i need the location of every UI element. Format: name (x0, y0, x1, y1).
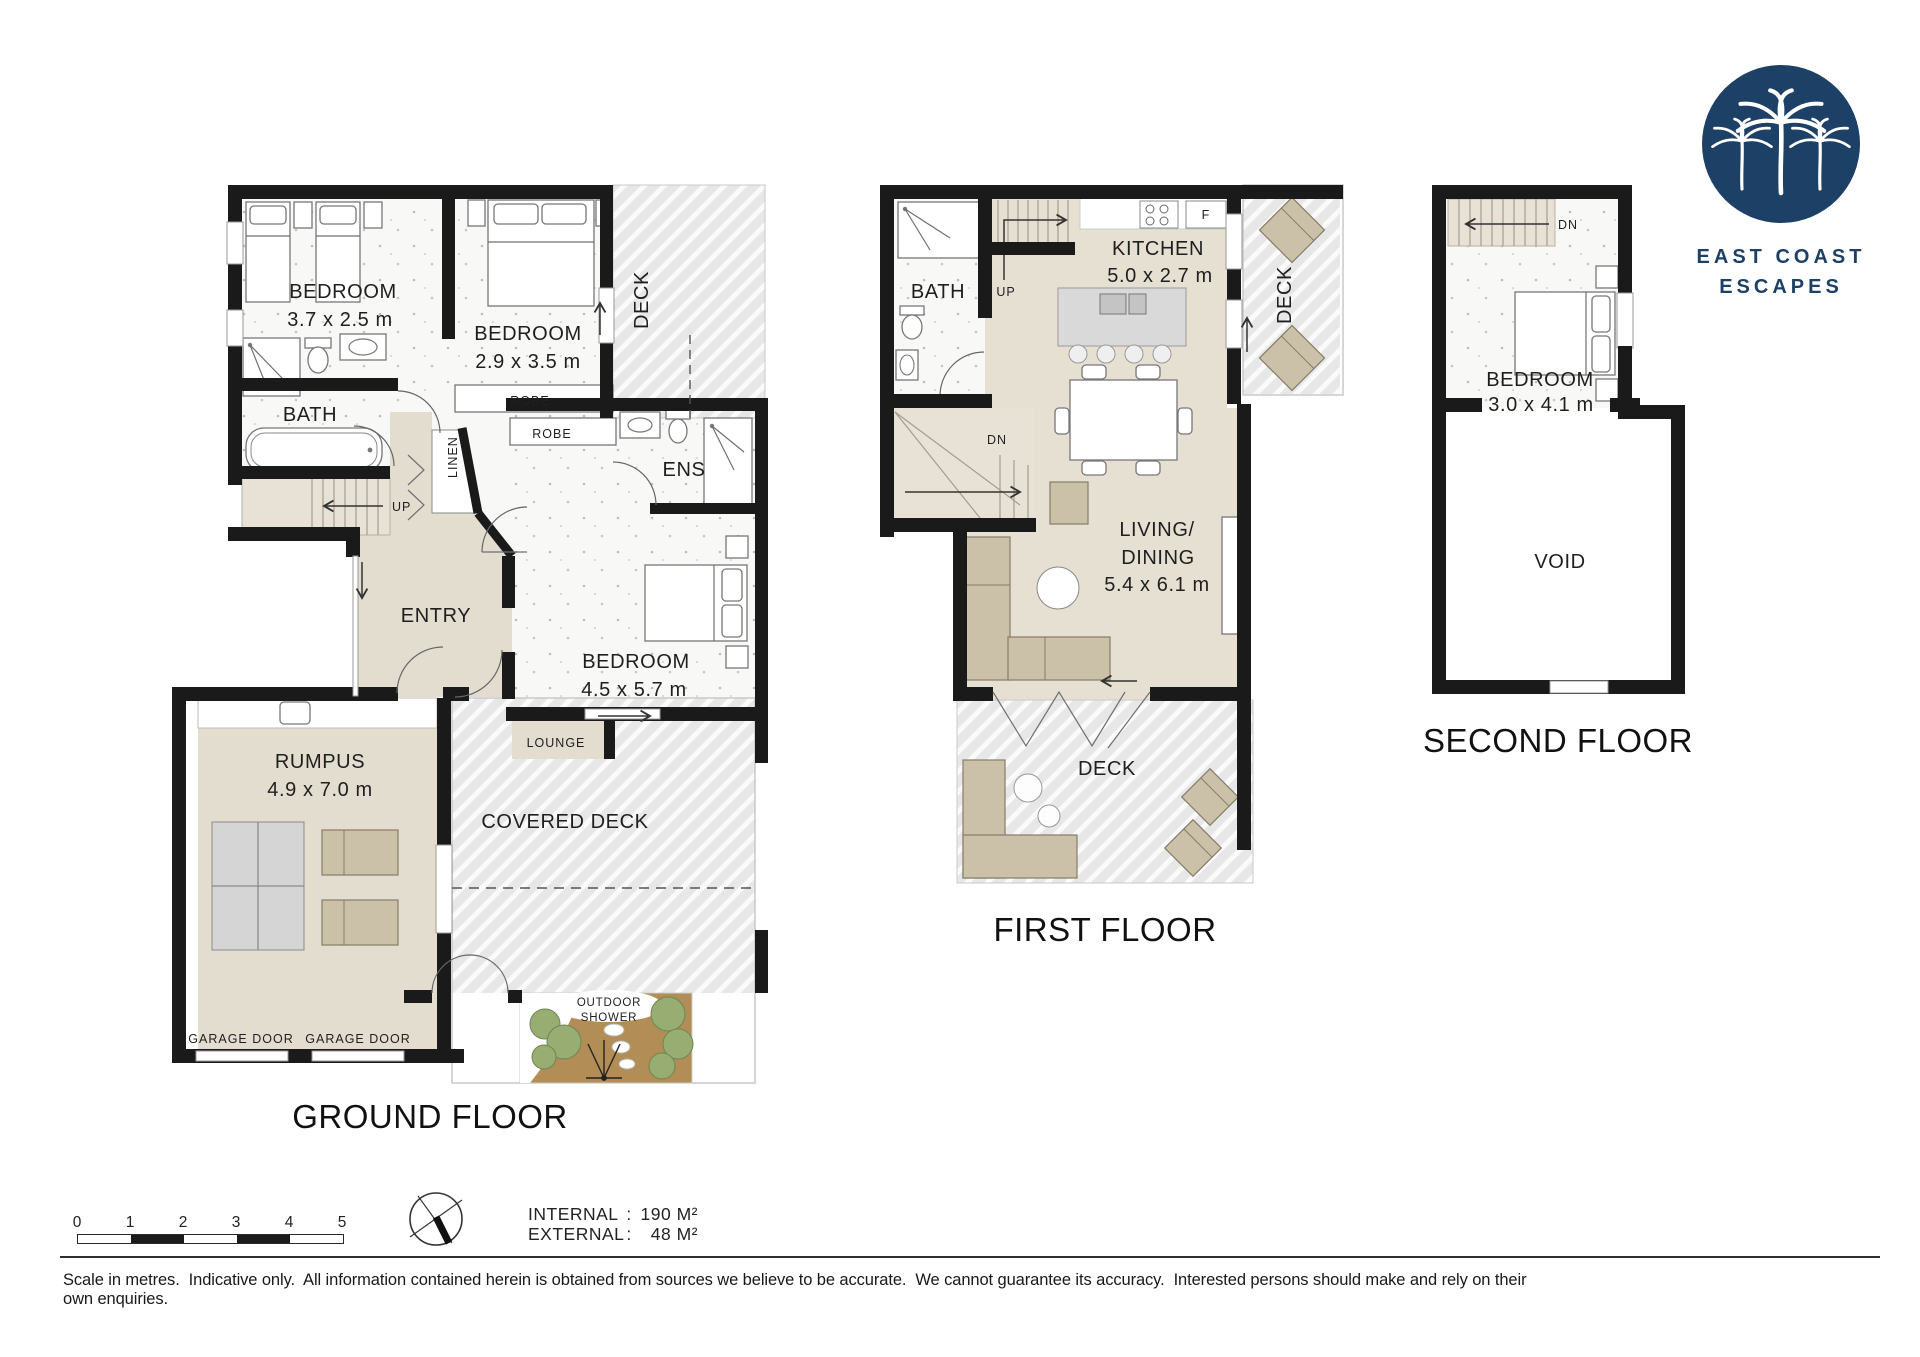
armchair (1050, 482, 1088, 524)
side-table (1038, 805, 1060, 827)
entry-label: ENTRY (401, 605, 471, 627)
scale-tick: 2 (172, 1214, 194, 1232)
sink (340, 334, 386, 360)
svg-text:F: F (1202, 208, 1211, 222)
bedside-table (1596, 379, 1618, 401)
stairs-up (242, 478, 390, 535)
scale-tick: 5 (331, 1214, 353, 1232)
bedroom1-dims: 3.7 x 2.5 m (287, 309, 393, 331)
single-bed (246, 202, 290, 302)
scale-tick: 3 (225, 1214, 247, 1232)
living-label: LIVING/ (1119, 519, 1194, 541)
internal-area-value: 190 M² (636, 1205, 698, 1224)
scale-tick: 1 (119, 1214, 141, 1232)
double-bed (645, 565, 747, 641)
ground-floor-title: GROUND FLOOR (292, 1098, 568, 1135)
external-area-value: 48 M² (636, 1225, 698, 1244)
deck-label: DECK (631, 271, 653, 329)
dn-label: DN (1558, 218, 1578, 232)
bedroom-label: BEDROOM (1486, 369, 1594, 391)
disclaimer-text: Scale in metres. Indicative only. All in… (63, 1271, 1533, 1309)
robe-label: ROBE (510, 394, 549, 408)
dn-label: DN (987, 433, 1007, 447)
area-summary: INTERNAL : 190 M² EXTERNAL : 48 M² (528, 1205, 698, 1244)
bedside-table (726, 536, 748, 558)
kitchen-label: KITCHEN (1112, 238, 1204, 260)
stairs-down (1448, 199, 1555, 246)
rumpus-dims: 4.9 x 7.0 m (267, 779, 373, 801)
bedroom2-dims: 2.9 x 3.5 m (475, 351, 581, 373)
living-dims: 5.4 x 6.1 m (1104, 574, 1210, 596)
svg-text:SHOWER: SHOWER (581, 1012, 638, 1024)
east-coast-escapes-logo: EAST COAST ESCAPES (1690, 55, 1890, 305)
sink (280, 702, 310, 724)
scale-tick: 4 (278, 1214, 300, 1232)
logo-name-line2: ESCAPES (1719, 276, 1843, 298)
second-floor-title: SECOND FLOOR (1423, 722, 1693, 759)
double-bed (488, 200, 594, 306)
sink (896, 350, 918, 380)
first-floor-plan: F (870, 178, 1360, 968)
scale-tick: 0 (66, 1214, 88, 1232)
lounge-label: LOUNGE (527, 736, 586, 750)
lounge-chair (322, 900, 398, 945)
bedside-table (364, 202, 382, 228)
second-floor-plan: BEDROOM 3.0 x 4.1 m VOID DN SECOND FLOOR (1415, 178, 1735, 778)
logo-name-line1: EAST COAST (1697, 246, 1866, 268)
rumpus-label: RUMPUS (275, 751, 365, 773)
kitchen-dims: 5.0 x 2.7 m (1107, 265, 1213, 287)
robe-label: ROBE (532, 427, 571, 441)
outdoor-shower-label: OUTDOOR (577, 997, 641, 1009)
bath-label: BATH (283, 404, 337, 426)
deck-label: DECK (1078, 758, 1136, 780)
internal-area-label: INTERNAL (528, 1205, 622, 1224)
side-table (1014, 774, 1042, 802)
kitchenette-bench (198, 698, 437, 728)
ens-label: ENS (663, 459, 706, 481)
cooktop (1140, 201, 1178, 228)
up-label: UP (996, 285, 1015, 299)
garage-door-label: GARAGE DOOR (305, 1032, 410, 1046)
fridge: F (1186, 201, 1226, 228)
double-bed (1515, 292, 1615, 375)
lounge-chair (322, 830, 398, 875)
table-tennis-table (212, 822, 304, 950)
bedside-table (294, 202, 312, 228)
sink (620, 412, 660, 438)
bedroom2-label: BEDROOM (474, 323, 582, 345)
first-floor-title: FIRST FLOOR (993, 911, 1216, 948)
shower (898, 202, 980, 258)
bathtub (246, 428, 382, 472)
garage-door-label: GARAGE DOOR (188, 1032, 293, 1046)
linen-label: LINEN (446, 436, 460, 478)
external-area-label: EXTERNAL (528, 1225, 622, 1244)
bedside-table (726, 646, 748, 668)
bedroom3-label: BEDROOM (582, 651, 690, 673)
coffee-table (1037, 567, 1079, 609)
footer-divider (60, 1256, 1880, 1258)
bath-label: BATH (911, 281, 965, 303)
bedside-table (468, 200, 485, 226)
floorplan-page: BEDROOM 3.7 x 2.5 m BEDROOM 2.9 x 3.5 m … (0, 0, 1920, 1357)
covered-deck-label: COVERED DECK (481, 811, 648, 833)
void-label: VOID (1534, 551, 1585, 573)
svg-text:DINING: DINING (1121, 547, 1195, 569)
bedside-table (1596, 266, 1618, 288)
bedroom-dims: 3.0 x 4.1 m (1488, 394, 1594, 416)
bedroom1-label: BEDROOM (289, 281, 397, 303)
void-floor (1445, 412, 1673, 682)
deck-label: DECK (1274, 266, 1296, 324)
compass-icon (405, 1188, 469, 1252)
ground-floor-plan: BEDROOM 3.7 x 2.5 m BEDROOM 2.9 x 3.5 m … (170, 178, 790, 1158)
up-label: UP (392, 500, 411, 514)
shower (704, 418, 752, 506)
bedroom3-dims: 4.5 x 5.7 m (581, 679, 687, 701)
toilet (900, 306, 924, 339)
dining-table (1055, 365, 1192, 475)
